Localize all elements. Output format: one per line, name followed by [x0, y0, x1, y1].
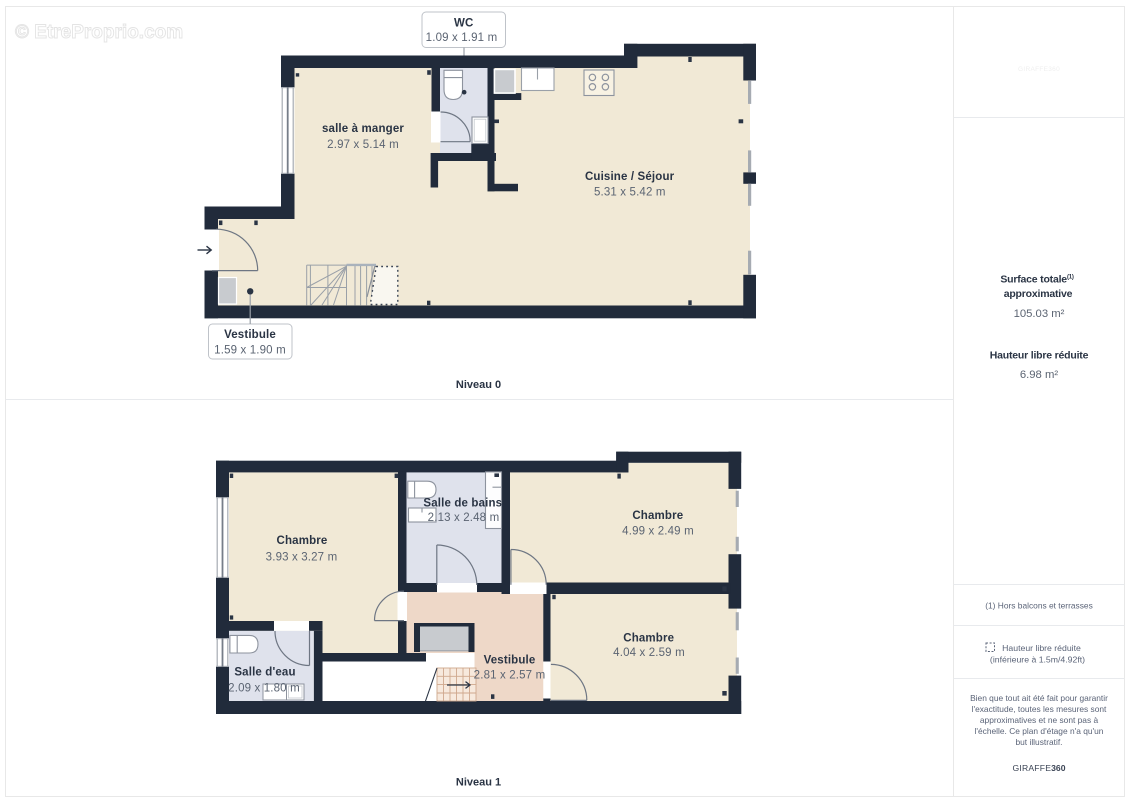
svg-text:Chambre: Chambre [277, 535, 328, 547]
svg-text:Hauteur libre réduite: Hauteur libre réduite [990, 350, 1089, 362]
svg-text:salle à manger: salle à manger [322, 123, 404, 135]
svg-text:WC: WC [454, 18, 473, 30]
svg-text:3.93 x 3.27 m: 3.93 x 3.27 m [266, 552, 338, 564]
svg-text:but illustratif.: but illustratif. [1015, 737, 1062, 747]
svg-text:4.99 x 2.49 m: 4.99 x 2.49 m [622, 526, 694, 538]
svg-text:Surface totale(1): Surface totale(1) [1000, 274, 1074, 286]
svg-text:Niveau 1: Niveau 1 [456, 777, 501, 789]
svg-text:(inférieure à 1.5m/4.92ft): (inférieure à 1.5m/4.92ft) [990, 654, 1085, 664]
svg-text:l'exactitude, toutes les mesur: l'exactitude, toutes les mesures sont [972, 704, 1107, 714]
svg-text:Vestibule: Vestibule [484, 655, 536, 667]
svg-text:approximatives et ne sont pas: approximatives et ne sont pas à [980, 715, 1099, 725]
svg-text:© EtreProprio.com: © EtreProprio.com [15, 22, 183, 43]
svg-text:5.31 x 5.42 m: 5.31 x 5.42 m [594, 186, 666, 198]
svg-text:Salle d'eau: Salle d'eau [234, 667, 295, 679]
svg-text:2.81 x 2.57 m: 2.81 x 2.57 m [474, 669, 546, 681]
svg-text:2.13 x 2.48 m: 2.13 x 2.48 m [428, 512, 500, 524]
svg-text:Hauteur libre réduite: Hauteur libre réduite [1002, 643, 1081, 653]
svg-text:4.04 x 2.59 m: 4.04 x 2.59 m [613, 647, 685, 659]
svg-text:Vestibule: Vestibule [224, 329, 276, 341]
svg-text:Cuisine / Séjour: Cuisine / Séjour [585, 171, 675, 183]
svg-text:l'échelle. Ce plan d'étage n'a: l'échelle. Ce plan d'étage n'a qu'un [975, 726, 1104, 736]
svg-text:Chambre: Chambre [632, 510, 683, 522]
svg-text:2.09 x 1.80 m: 2.09 x 1.80 m [228, 682, 300, 694]
svg-text:Bien que tout ait été fait pou: Bien que tout ait été fait pour garantir [970, 693, 1108, 703]
svg-text:GIRAFFE360: GIRAFFE360 [1013, 763, 1066, 773]
svg-text:Chambre: Chambre [623, 633, 674, 645]
svg-text:Niveau 0: Niveau 0 [456, 379, 501, 391]
svg-text:approximative: approximative [1004, 288, 1073, 300]
svg-text:GIRAFFE360: GIRAFFE360 [1018, 66, 1060, 73]
svg-text:(1) Hors balcons et terrasses: (1) Hors balcons et terrasses [985, 601, 1093, 611]
svg-text:105.03 m²: 105.03 m² [1014, 308, 1065, 320]
svg-text:2.97 x 5.14 m: 2.97 x 5.14 m [327, 139, 399, 151]
svg-text:6.98 m²: 6.98 m² [1020, 369, 1059, 381]
svg-text:1.59 x 1.90 m: 1.59 x 1.90 m [214, 345, 286, 357]
svg-text:1.09 x 1.91 m: 1.09 x 1.91 m [426, 32, 498, 44]
svg-text:Salle de bains: Salle de bains [423, 498, 502, 510]
